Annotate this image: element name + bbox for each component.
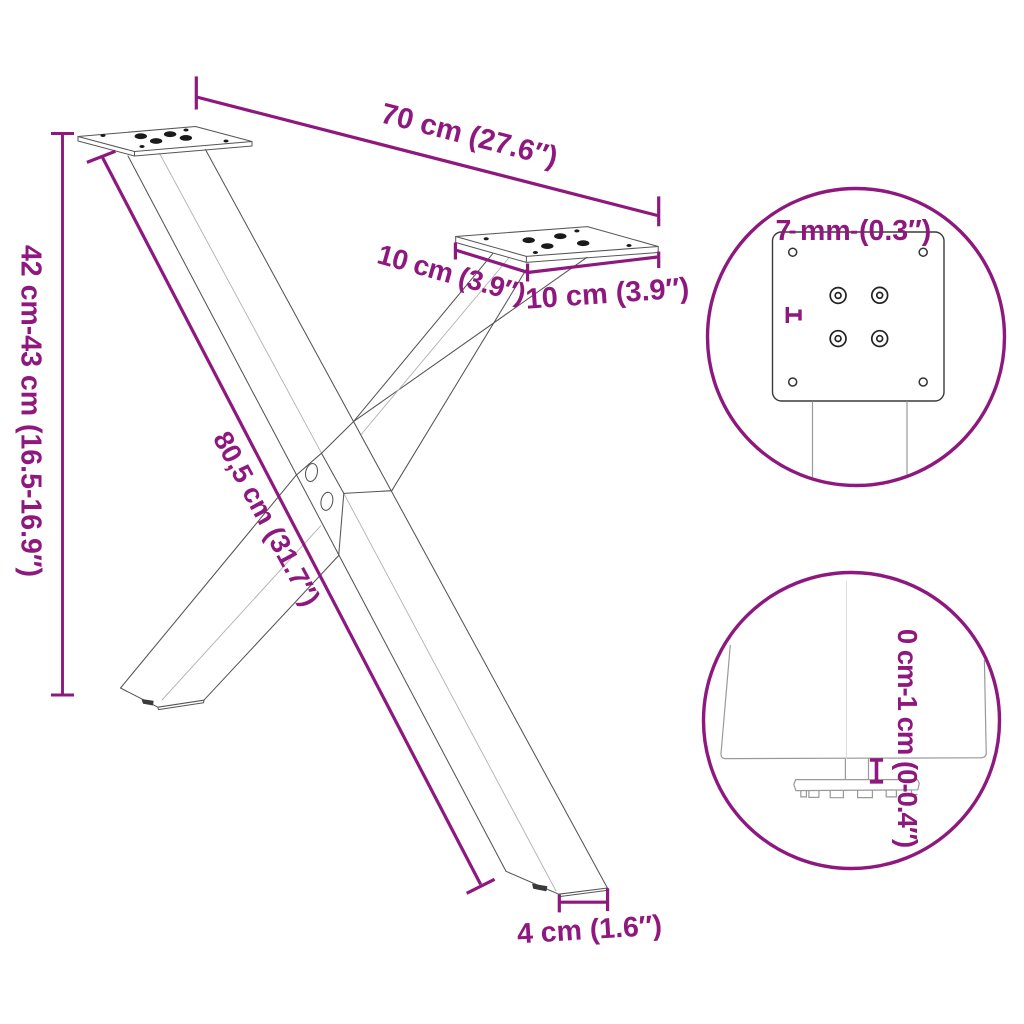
svg-text:42 cm-43 cm (16.5-16.9″): 42 cm-43 cm (16.5-16.9″) [15,245,47,577]
svg-text:mm: mm [800,215,851,247]
svg-text:7: 7 [776,215,792,247]
svg-text:(0.3″): (0.3″) [859,215,931,247]
svg-text:0 cm-1 cm (0-0.4″): 0 cm-1 cm (0-0.4″) [892,629,923,847]
